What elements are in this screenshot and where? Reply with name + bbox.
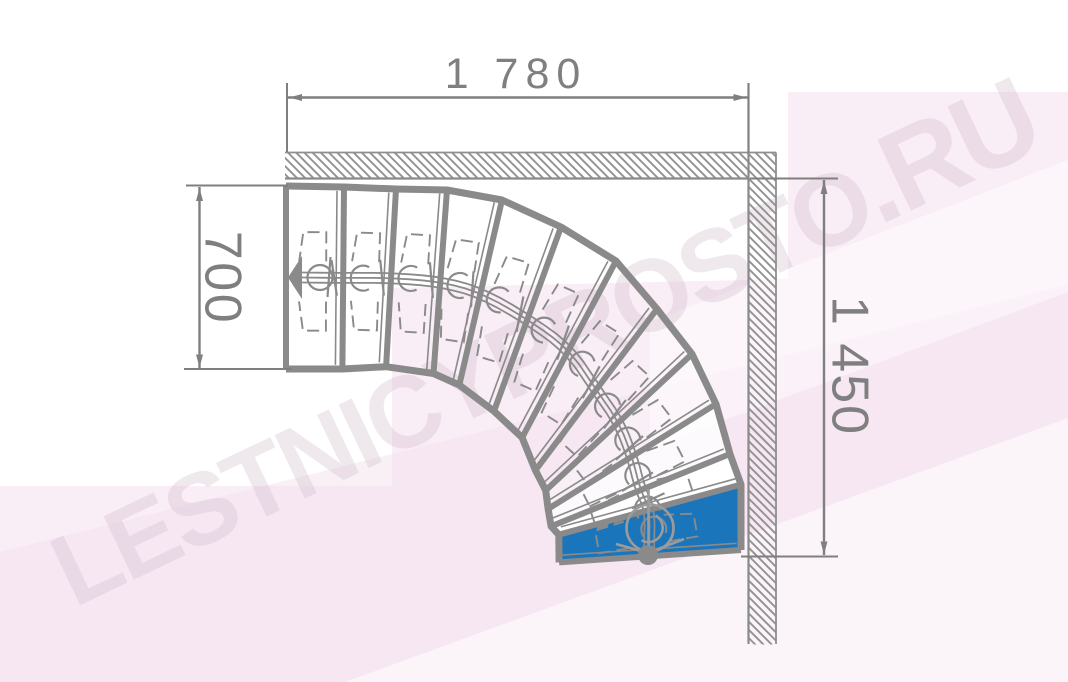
svg-text:1 450: 1 450 bbox=[821, 296, 879, 436]
svg-text:700: 700 bbox=[194, 231, 252, 325]
svg-text:1 780: 1 780 bbox=[445, 50, 588, 98]
